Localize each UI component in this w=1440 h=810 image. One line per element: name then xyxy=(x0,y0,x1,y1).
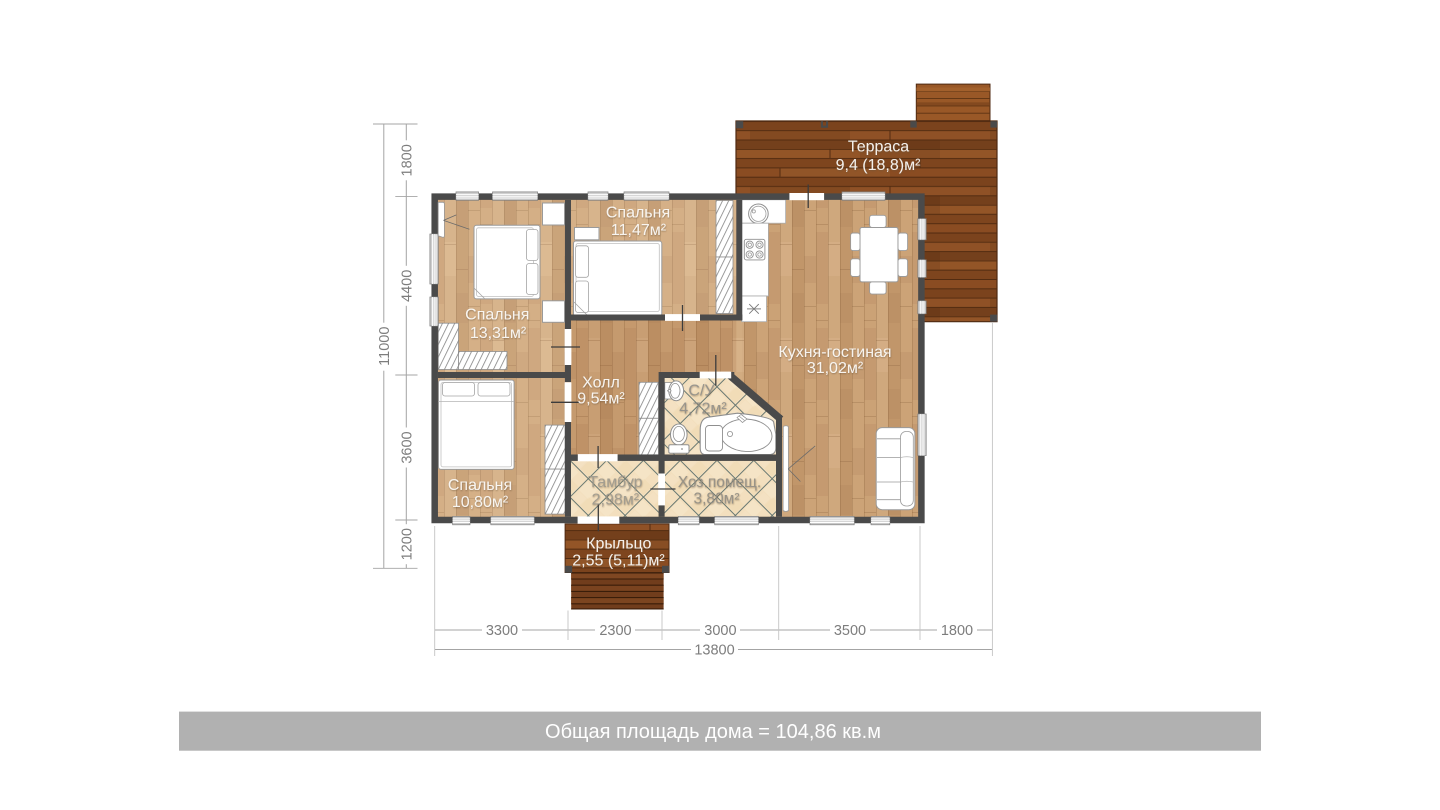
svg-text:2,55 (5,11)м²: 2,55 (5,11)м² xyxy=(572,552,665,569)
svg-text:3300: 3300 xyxy=(486,623,518,639)
svg-text:3500: 3500 xyxy=(834,623,866,639)
svg-text:1200: 1200 xyxy=(399,528,415,560)
svg-text:1800: 1800 xyxy=(399,144,415,176)
svg-text:11000: 11000 xyxy=(377,327,393,366)
svg-text:Тамбур: Тамбур xyxy=(588,474,642,491)
svg-text:1800: 1800 xyxy=(941,623,973,639)
svg-text:Крыльцо: Крыльцо xyxy=(586,535,651,552)
svg-text:Холл: Холл xyxy=(582,375,620,392)
svg-text:Кухня-гостиная: Кухня-гостиная xyxy=(778,344,891,361)
svg-text:2300: 2300 xyxy=(599,623,631,639)
svg-text:31,02м²: 31,02м² xyxy=(807,360,864,377)
svg-text:10,80м²: 10,80м² xyxy=(452,494,509,511)
svg-text:Хоз.помещ.: Хоз.помещ. xyxy=(678,474,761,491)
svg-text:11,47м²: 11,47м² xyxy=(611,222,667,239)
svg-text:Терраса: Терраса xyxy=(848,139,909,156)
svg-text:13800: 13800 xyxy=(694,642,734,658)
svg-text:С/У: С/У xyxy=(688,383,715,400)
svg-text:4,72м²: 4,72м² xyxy=(679,401,727,418)
svg-text:Спальня: Спальня xyxy=(465,307,529,324)
svg-text:9,54м²: 9,54м² xyxy=(577,391,625,408)
svg-text:3000: 3000 xyxy=(704,623,736,639)
svg-text:Спальня: Спальня xyxy=(606,205,670,222)
svg-text:13,31м²: 13,31м² xyxy=(470,325,527,342)
svg-text:Общая площадь дома = 104,86 кв: Общая площадь дома = 104,86 кв.м xyxy=(545,721,881,743)
svg-text:Спальня: Спальня xyxy=(448,477,512,494)
svg-text:4400: 4400 xyxy=(399,270,415,302)
svg-text:3600: 3600 xyxy=(399,431,415,463)
svg-text:3,80м²: 3,80м² xyxy=(694,491,740,508)
svg-text:9,4 (18,8)м²: 9,4 (18,8)м² xyxy=(836,157,921,174)
svg-text:2,98м²: 2,98м² xyxy=(592,492,640,509)
